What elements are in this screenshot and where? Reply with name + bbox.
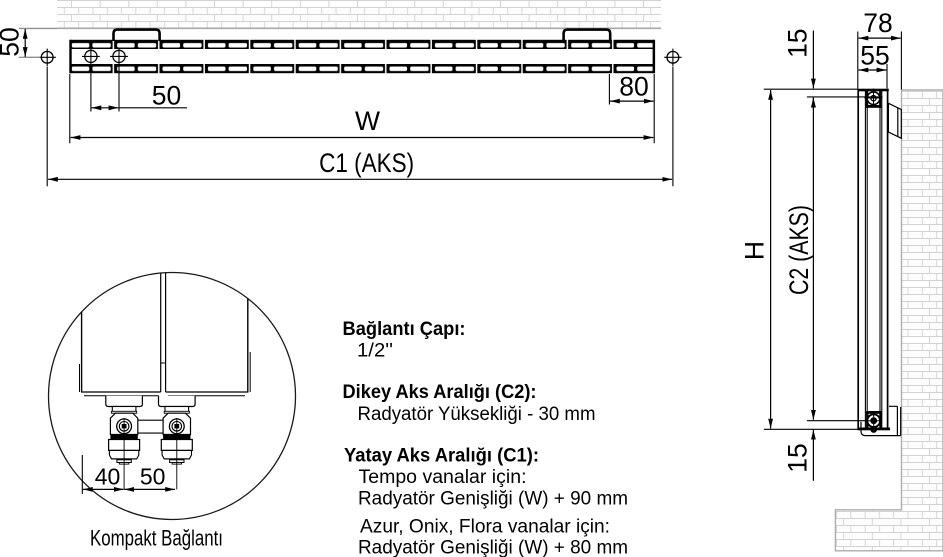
svg-text:1/2'': 1/2'': [357, 340, 393, 361]
svg-text:78: 78: [863, 8, 892, 38]
svg-text:55: 55: [860, 41, 889, 71]
svg-text:15: 15: [783, 28, 813, 57]
svg-text:Azur, Onix, Flora vanalar için: Azur, Onix, Flora vanalar için:: [360, 516, 610, 537]
svg-text:Yatay Aks Aralığı (C1):: Yatay Aks Aralığı (C1):: [344, 445, 539, 466]
svg-text:Dikey Aks Aralığı (C2):: Dikey Aks Aralığı (C2):: [343, 382, 537, 403]
svg-text:50: 50: [152, 80, 181, 110]
svg-text:Radyatör Genişliği (W) + 90 mm: Radyatör Genişliği (W) + 90 mm: [358, 488, 628, 509]
svg-text:15: 15: [783, 443, 813, 472]
svg-text:H: H: [740, 241, 770, 260]
svg-text:40: 40: [95, 463, 121, 489]
svg-text:50: 50: [140, 463, 166, 489]
svg-text:Tempo vanalar için:: Tempo vanalar için:: [359, 467, 527, 488]
svg-text:Bağlantı Çapı:: Bağlantı Çapı:: [343, 319, 466, 340]
svg-text:W: W: [355, 106, 380, 136]
svg-text:Kompakt Bağlantı: Kompakt Bağlantı: [90, 526, 223, 551]
svg-text:50: 50: [0, 27, 24, 56]
svg-text:Radyatör Genişliği (W) + 80 mm: Radyatör Genişliği (W) + 80 mm: [358, 537, 628, 557]
svg-text:80: 80: [619, 72, 648, 102]
svg-text:Radyatör Yüksekliği - 30 mm: Radyatör Yüksekliği - 30 mm: [358, 404, 596, 425]
svg-text:C2 (AKS): C2 (AKS): [784, 205, 814, 295]
svg-text:C1 (AKS): C1 (AKS): [319, 148, 414, 178]
